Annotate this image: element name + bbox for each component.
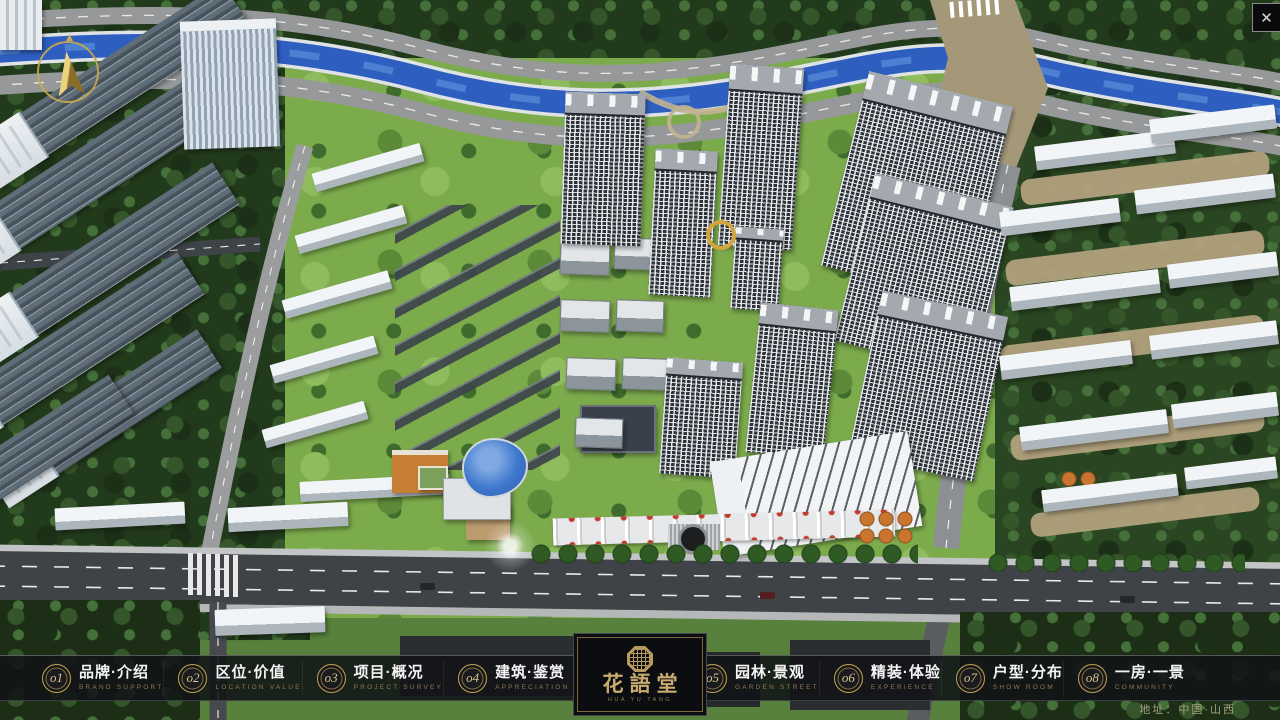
tower-block xyxy=(0,0,42,50)
street-trees xyxy=(528,543,918,565)
highrise-tower xyxy=(648,148,718,297)
menu-item-location[interactable]: o2 区位·价值 LOCATION VALUE xyxy=(163,661,301,695)
menu-badge: o7 xyxy=(956,664,985,693)
car xyxy=(420,583,435,590)
menu-badge: o4 xyxy=(458,664,487,693)
brand-logo-panel[interactable]: 花語堂 HUA YU TANG xyxy=(573,633,707,716)
gold-feature-ring xyxy=(706,220,736,250)
close-icon: ✕ xyxy=(1260,9,1273,27)
menu-label-en: GARDEN STREET xyxy=(735,684,819,691)
midrise-block xyxy=(565,357,616,391)
menu-group-left: o1 品牌·介绍 BRAND SUPPORT o2 区位·价值 LOCATION… xyxy=(42,656,467,700)
menu-label-en: APPRECIATION xyxy=(495,684,569,691)
menu-label-en: PROJECT SURVEY xyxy=(354,684,443,691)
compass-icon xyxy=(37,41,99,103)
menu-label-en: SHOW ROOM xyxy=(993,684,1063,691)
menu-label-zh: 户型·分布 xyxy=(993,665,1063,682)
brand-title: 花語堂 xyxy=(597,674,684,695)
menu-item-interior[interactable]: o6 精装·体验 EXPERIENCE xyxy=(819,661,941,695)
project-address: 地址：中国·山西 xyxy=(1139,701,1236,717)
menu-label-zh: 项目·概况 xyxy=(354,665,443,682)
menu-item-project[interactable]: o3 项目·概况 PROJECT SURVEY xyxy=(302,661,443,695)
menu-label-zh: 一房·一景 xyxy=(1115,665,1185,682)
menu-item-architecture[interactable]: o4 建筑·鉴赏 APPRECIATION xyxy=(443,661,569,695)
brand-logo-frame: 花語堂 HUA YU TANG xyxy=(577,637,703,712)
highrise-tower xyxy=(745,302,838,459)
midrise-block xyxy=(574,417,623,449)
menu-badge: o3 xyxy=(317,664,346,693)
menu-label-en: EXPERIENCE xyxy=(871,684,941,691)
street-trees xyxy=(985,552,1245,572)
menu-label-zh: 品牌·介绍 xyxy=(79,665,163,682)
brand-caption: HUA YU TANG xyxy=(608,697,672,703)
highrise-tower xyxy=(730,226,784,311)
menu-label-zh: 区位·价值 xyxy=(215,665,301,682)
brand-seal-icon xyxy=(627,646,653,672)
midrise-block xyxy=(621,357,668,391)
menu-label-zh: 园林·景观 xyxy=(735,665,819,682)
menu-item-floorplan[interactable]: o7 户型·分布 SHOW ROOM xyxy=(941,661,1063,695)
midrise-block xyxy=(615,299,664,333)
highrise-tower xyxy=(718,64,805,251)
close-button[interactable]: ✕ xyxy=(1252,3,1280,32)
menu-label-zh: 建筑·鉴赏 xyxy=(495,665,569,682)
menu-label-en: COMMUNITY xyxy=(1115,684,1185,691)
car xyxy=(760,592,775,599)
tower-block xyxy=(180,18,280,149)
menu-group-right: o5 园林·景观 GARDEN STREET o6 精装·体验 EXPERIEN… xyxy=(698,656,1123,700)
midrise-block xyxy=(559,242,610,276)
menu-badge: o1 xyxy=(42,664,71,693)
menu-badge: o6 xyxy=(834,664,863,693)
presentation-screen: ✕ o1 品牌·介绍 BRAND SUPPORT o2 区位·价值 LOCATI… xyxy=(0,0,1280,720)
lowrise-slab xyxy=(215,606,326,636)
car xyxy=(1120,596,1135,603)
menu-badge: o2 xyxy=(178,664,207,693)
midrise-block xyxy=(559,299,610,333)
menu-item-garden[interactable]: o5 园林·景观 GARDEN STREET xyxy=(698,661,819,695)
highrise-tower xyxy=(560,92,645,247)
menu-item-views[interactable]: o8 一房·一景 COMMUNITY xyxy=(1063,661,1185,695)
autumn-trees xyxy=(858,510,916,544)
compass-needle xyxy=(53,50,84,97)
lens-flare xyxy=(482,518,538,574)
menu-label-en: LOCATION VALUE xyxy=(215,684,301,691)
menu-label-en: BRAND SUPPORT xyxy=(79,684,163,691)
menu-label-zh: 精装·体验 xyxy=(871,665,941,682)
menu-badge: o8 xyxy=(1078,664,1107,693)
courtyard-villas xyxy=(395,205,560,470)
menu-item-brand[interactable]: o1 品牌·介绍 BRAND SUPPORT xyxy=(42,661,163,695)
